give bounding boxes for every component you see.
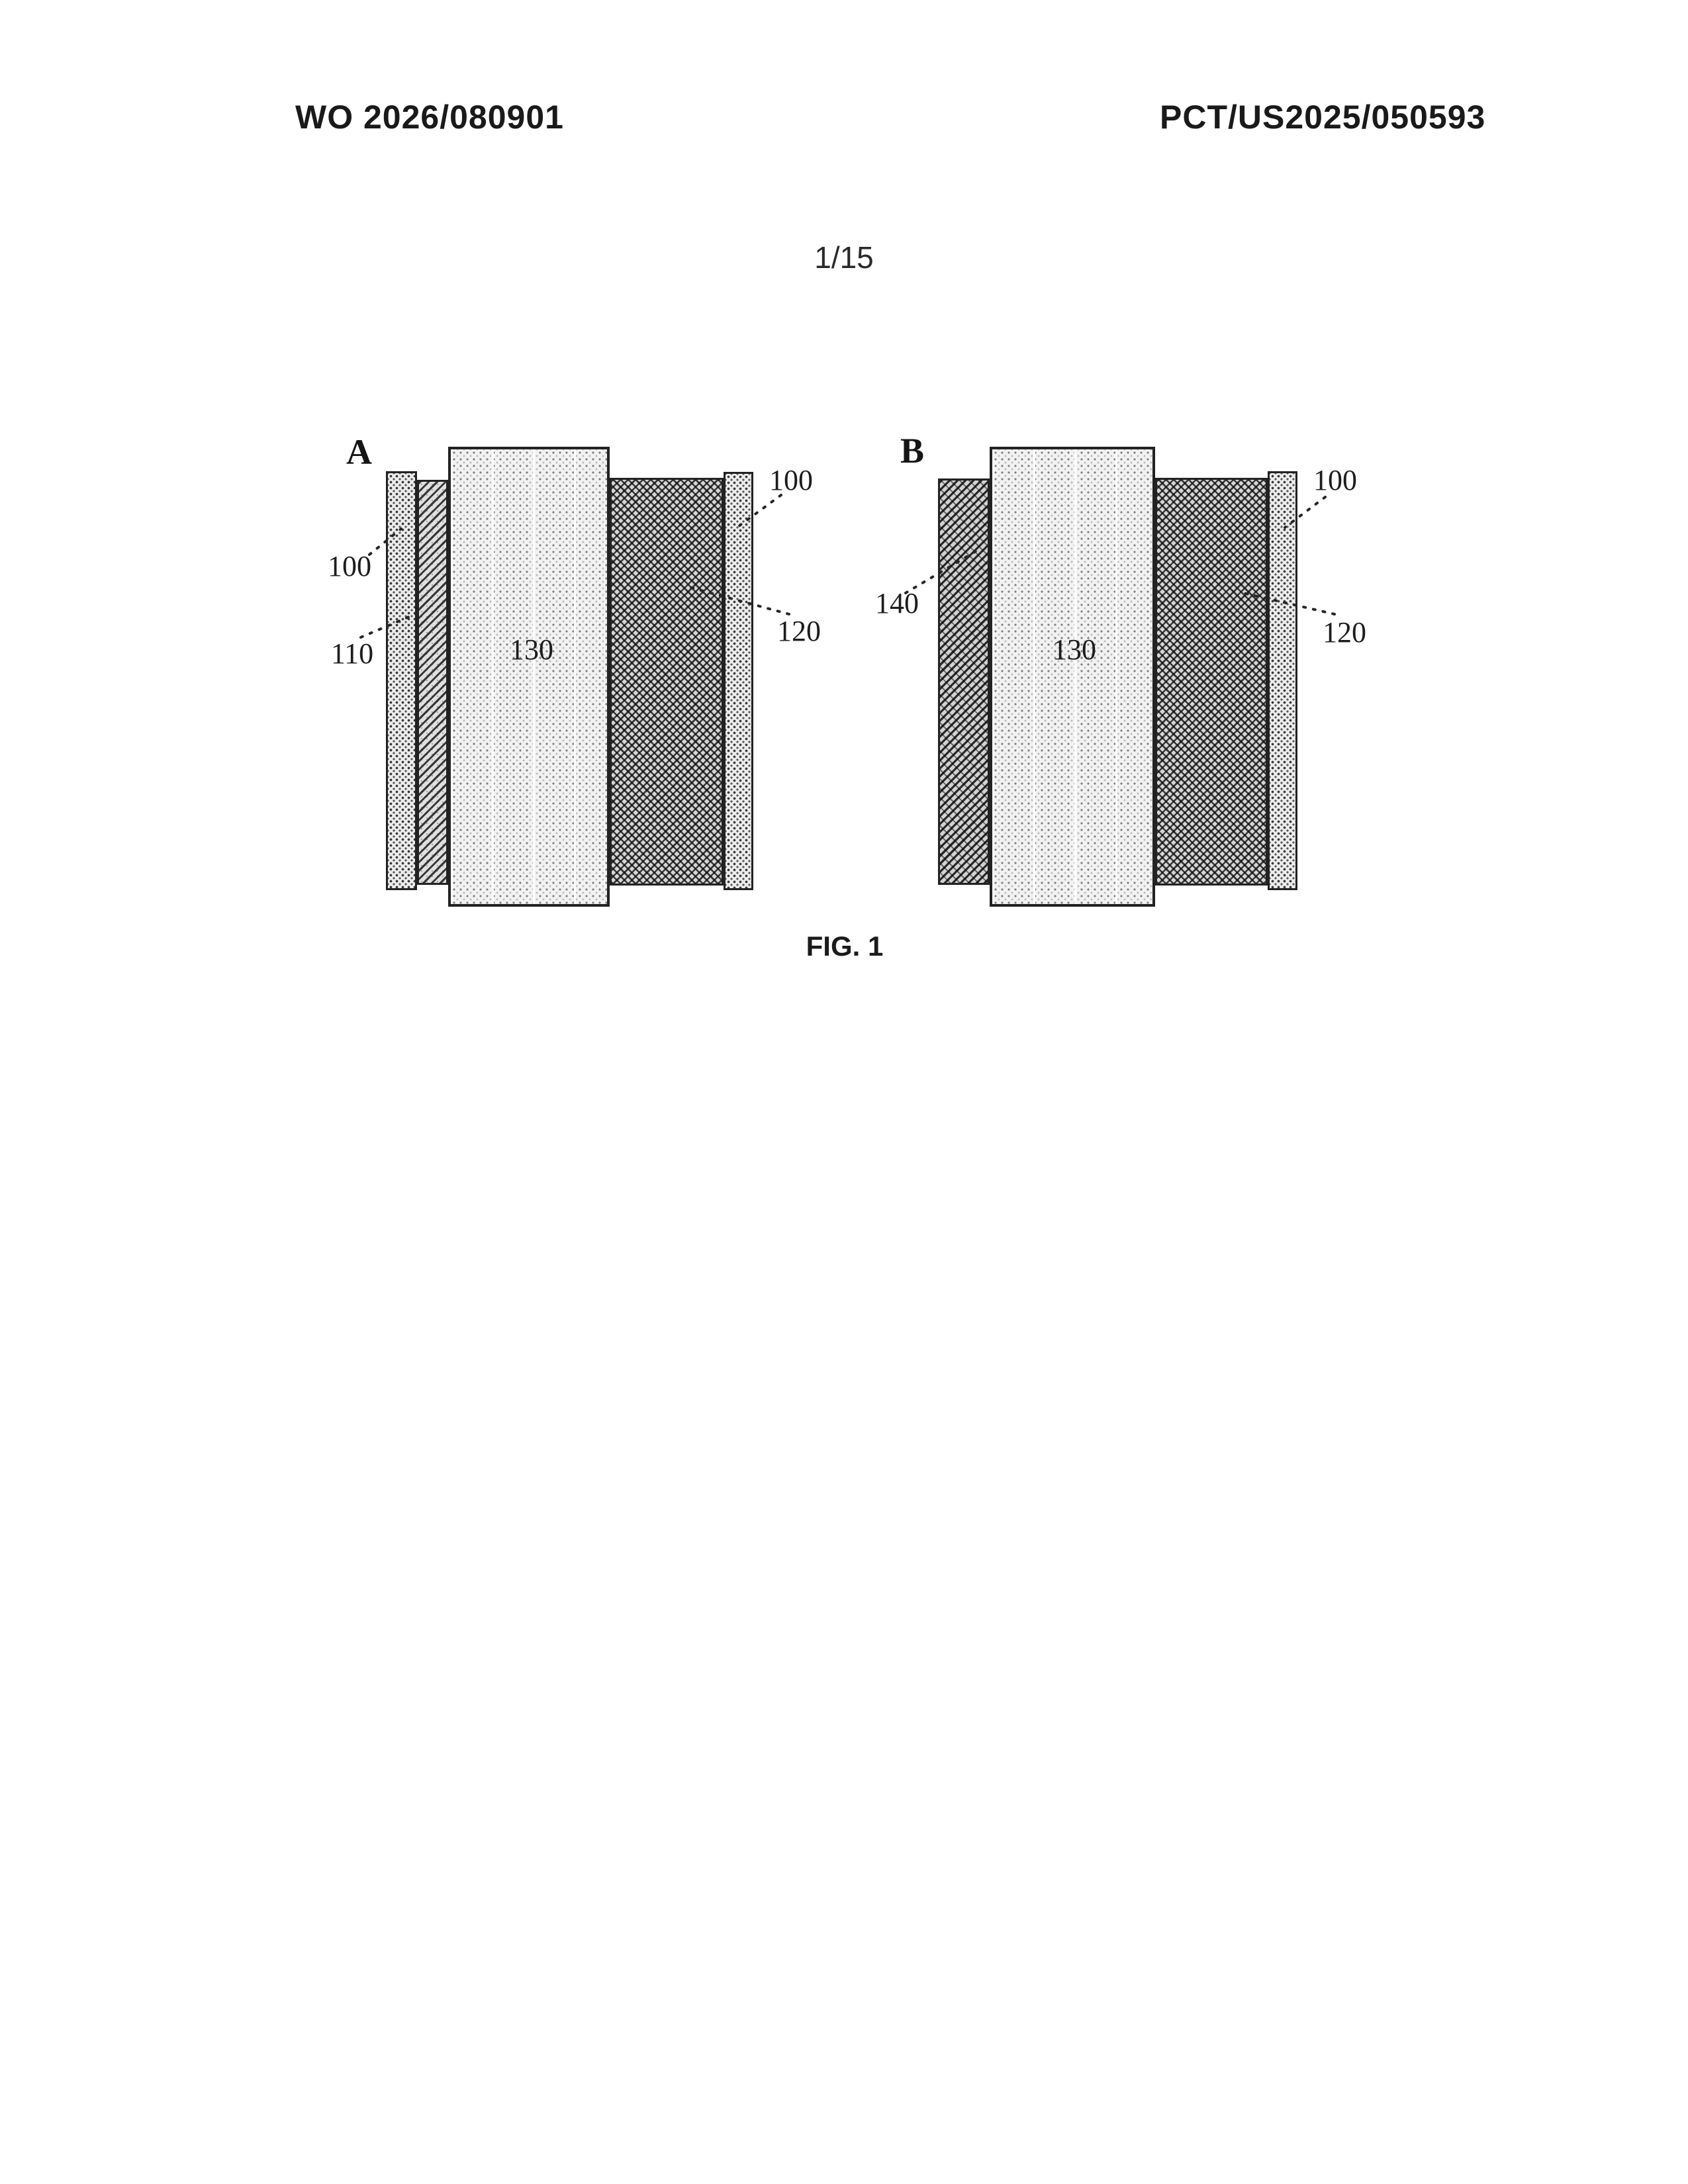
patent-drawing-page: WO 2026/080901 PCT/US2025/050593 1/15 A … [0,0,1688,2184]
panel-b-layer-140 [938,478,990,885]
panel-b-layer-130 [990,447,1155,907]
panel-b-ref-140: 140 [867,586,927,620]
panel-a-ref-110: 110 [322,637,382,670]
panel-b-ref-100: 100 [1305,463,1365,497]
panel-a-layer-100-right [724,472,753,890]
panel-a-layer-120 [610,478,724,886]
panel-a-layer-110 [417,480,448,885]
application-number: PCT/US2025/050593 [1160,98,1485,136]
panel-b-label: B [900,430,924,471]
panel-a-ref-120: 120 [769,614,829,648]
panel-a-ref-130: 130 [502,633,561,666]
panel-b-ref-120: 120 [1315,615,1374,649]
publication-number: WO 2026/080901 [295,98,564,136]
leader-lines [0,0,1688,2184]
panel-a-ref-100-left: 100 [320,549,379,583]
panel-b-layer-100 [1268,471,1297,890]
panel-b-ref-130: 130 [1045,633,1104,666]
panel-a-layer-100-left [386,471,417,890]
panel-b-layer-120 [1155,478,1268,886]
sheet-number: 1/15 [0,240,1688,275]
figure-caption: FIG. 1 [752,931,937,962]
panel-a-ref-100-right: 100 [761,463,821,497]
panel-a-label: A [346,432,372,473]
panel-a-layer-130 [448,447,610,907]
